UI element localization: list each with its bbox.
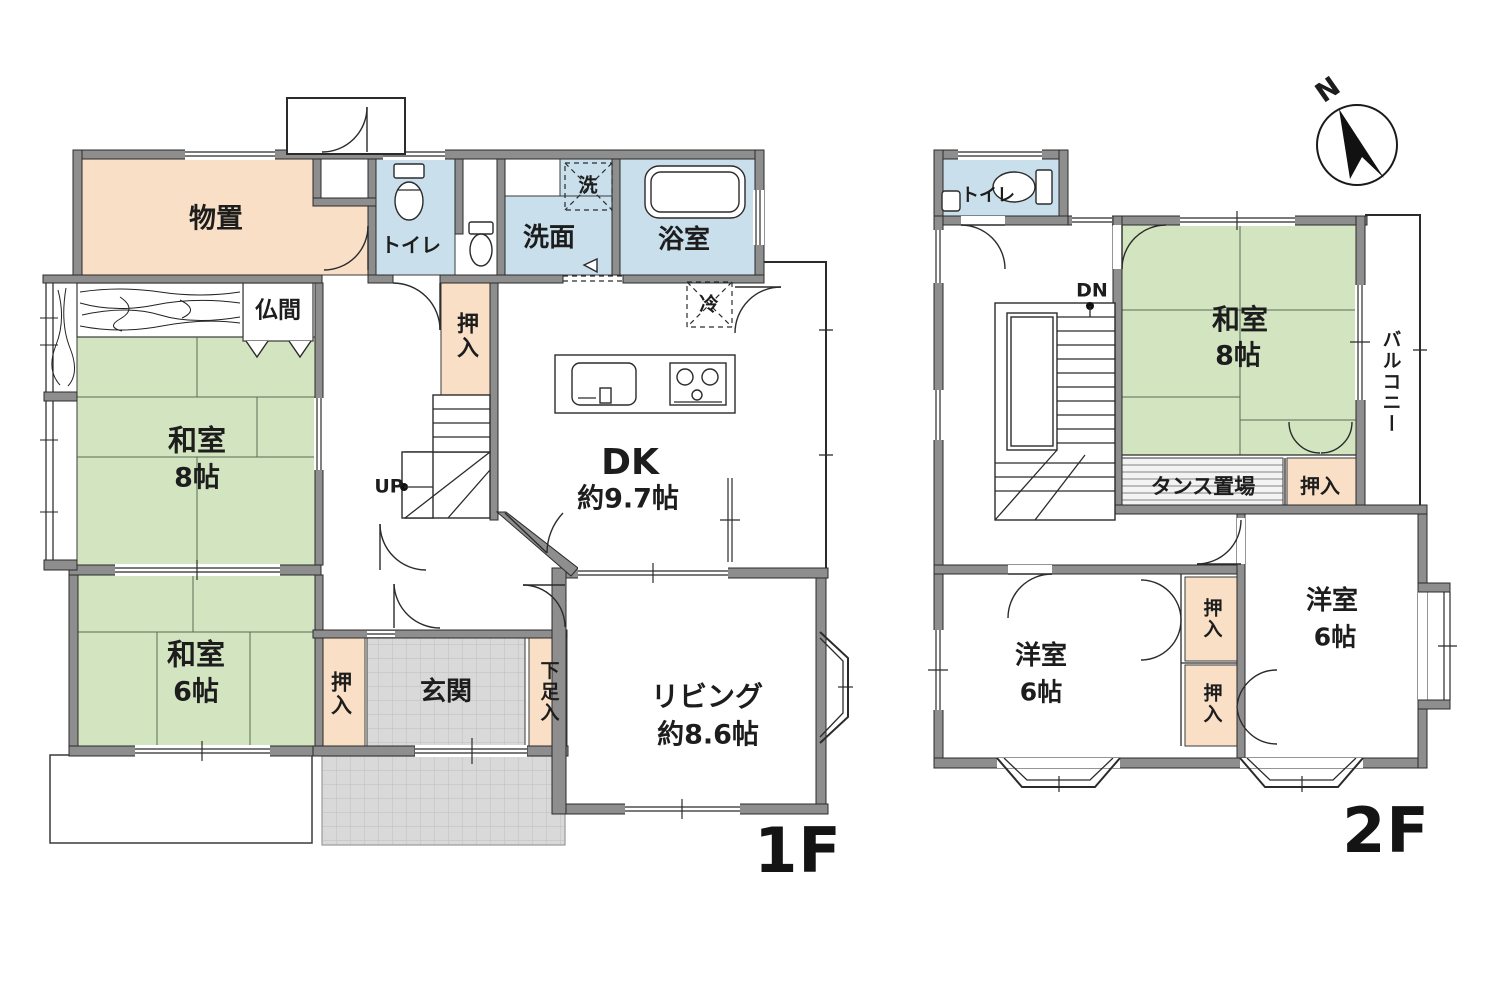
room-label-washitsu8-name: 和室 [168,427,226,456]
room-label-washitsu6-name: 和室 [167,641,225,670]
room-label-oshiire-center: 押入 [454,312,476,360]
room-label-balcony: バルコニー [1381,330,1400,435]
bay-window-left-youshitsu [997,758,1120,792]
floorplan-drawing [0,0,1500,1000]
stairs-down-label: DN [1076,282,1108,301]
staircase-2f [995,302,1115,520]
room-label-youshitsu-right-name: 洋室 [1306,588,1358,614]
room-label-butsuma: 仏間 [255,300,301,323]
room-label-toilet-2f: トイレ [961,187,1015,205]
kitchen-counter-icon [555,355,735,413]
floor1-label: 1F [754,820,842,882]
room-label-washroom: 洗面 [523,225,575,251]
floorplan-page: 物置 トイレ 洗面 洗 浴室 冷 仏間 押入 和室 8帖 和室 6帖 UP DK… [0,0,1500,1000]
room-label-oshiire-2f-mid-upper: 押入 [1202,598,1221,640]
room-label-washitsu8-2f-name: 和室 [1212,306,1268,334]
room-label-living-size: 約8.6帖 [657,722,759,749]
room-label-washitsu8-size: 8帖 [174,465,220,492]
room-label-dk-size: 約9.7帖 [577,486,679,513]
room-label-oshiire-2f-right: 押入 [1300,476,1340,496]
room-label-tansu: タンス置場 [1151,477,1256,498]
room-label-living-name: リビング [651,683,763,711]
hand-basin-icon-1f [469,222,493,266]
stairs-up-label: UP [374,478,403,497]
room-label-washitsu6-size: 6帖 [173,679,219,706]
bathtub-icon [645,166,745,218]
room-label-shoe-closet: 下足入 [539,661,558,724]
room-label-toilet-1f: トイレ [381,235,441,255]
floor2-label: 2F [1342,800,1430,862]
room-label-washitsu8-2f-size: 8帖 [1215,343,1261,370]
washer-space-label: 洗 [578,177,597,196]
room-label-storage: 物置 [189,206,243,233]
entry-porch-structure [287,98,405,154]
fridge-space-label: 冷 [699,296,718,315]
room-label-youshitsu-left-name: 洋室 [1015,643,1067,669]
floor2-plan [928,149,1457,792]
room-label-youshitsu-left-size: 6帖 [1020,680,1062,705]
veranda-outline [764,262,833,568]
toilet-icon-1f [394,164,424,220]
room-label-oshiire-2f-mid-lower: 押入 [1202,683,1221,725]
staircase-1f [400,395,490,518]
room-label-dk-name: DK [601,445,659,481]
room-label-bathroom: 浴室 [658,227,710,253]
bay-window-right-youshitsu [1240,758,1363,792]
room-label-youshitsu-right-size: 6帖 [1314,625,1356,650]
compass-icon [1317,105,1397,185]
room-label-genkan: 玄関 [420,679,472,705]
room-label-oshiire-bottom: 押入 [330,671,351,717]
